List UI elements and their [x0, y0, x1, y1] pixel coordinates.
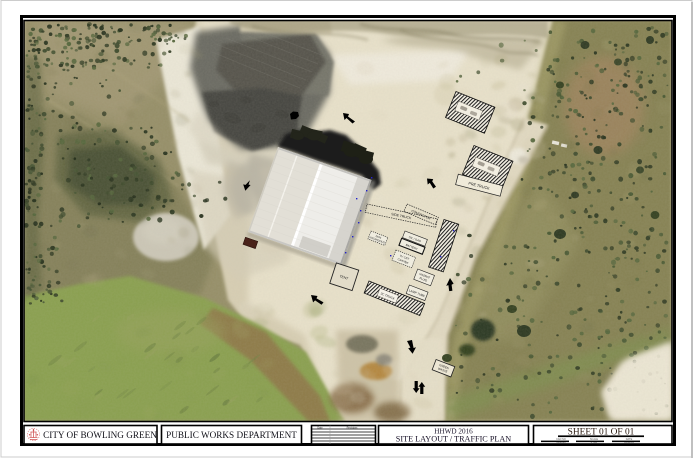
- svg-text:CITY OF BOWLING GREEN: CITY OF BOWLING GREEN: [43, 430, 157, 440]
- svg-text:Date: Date: [317, 426, 323, 429]
- svg-text:PUBLIC WORKS DEPARTMENT: PUBLIC WORKS DEPARTMENT: [166, 430, 297, 440]
- svg-text:Revisions: Revisions: [347, 426, 359, 429]
- svg-text:SITE LAYOUT / TRAFFIC PLAN: SITE LAYOUT / TRAFFIC PLAN: [396, 435, 511, 444]
